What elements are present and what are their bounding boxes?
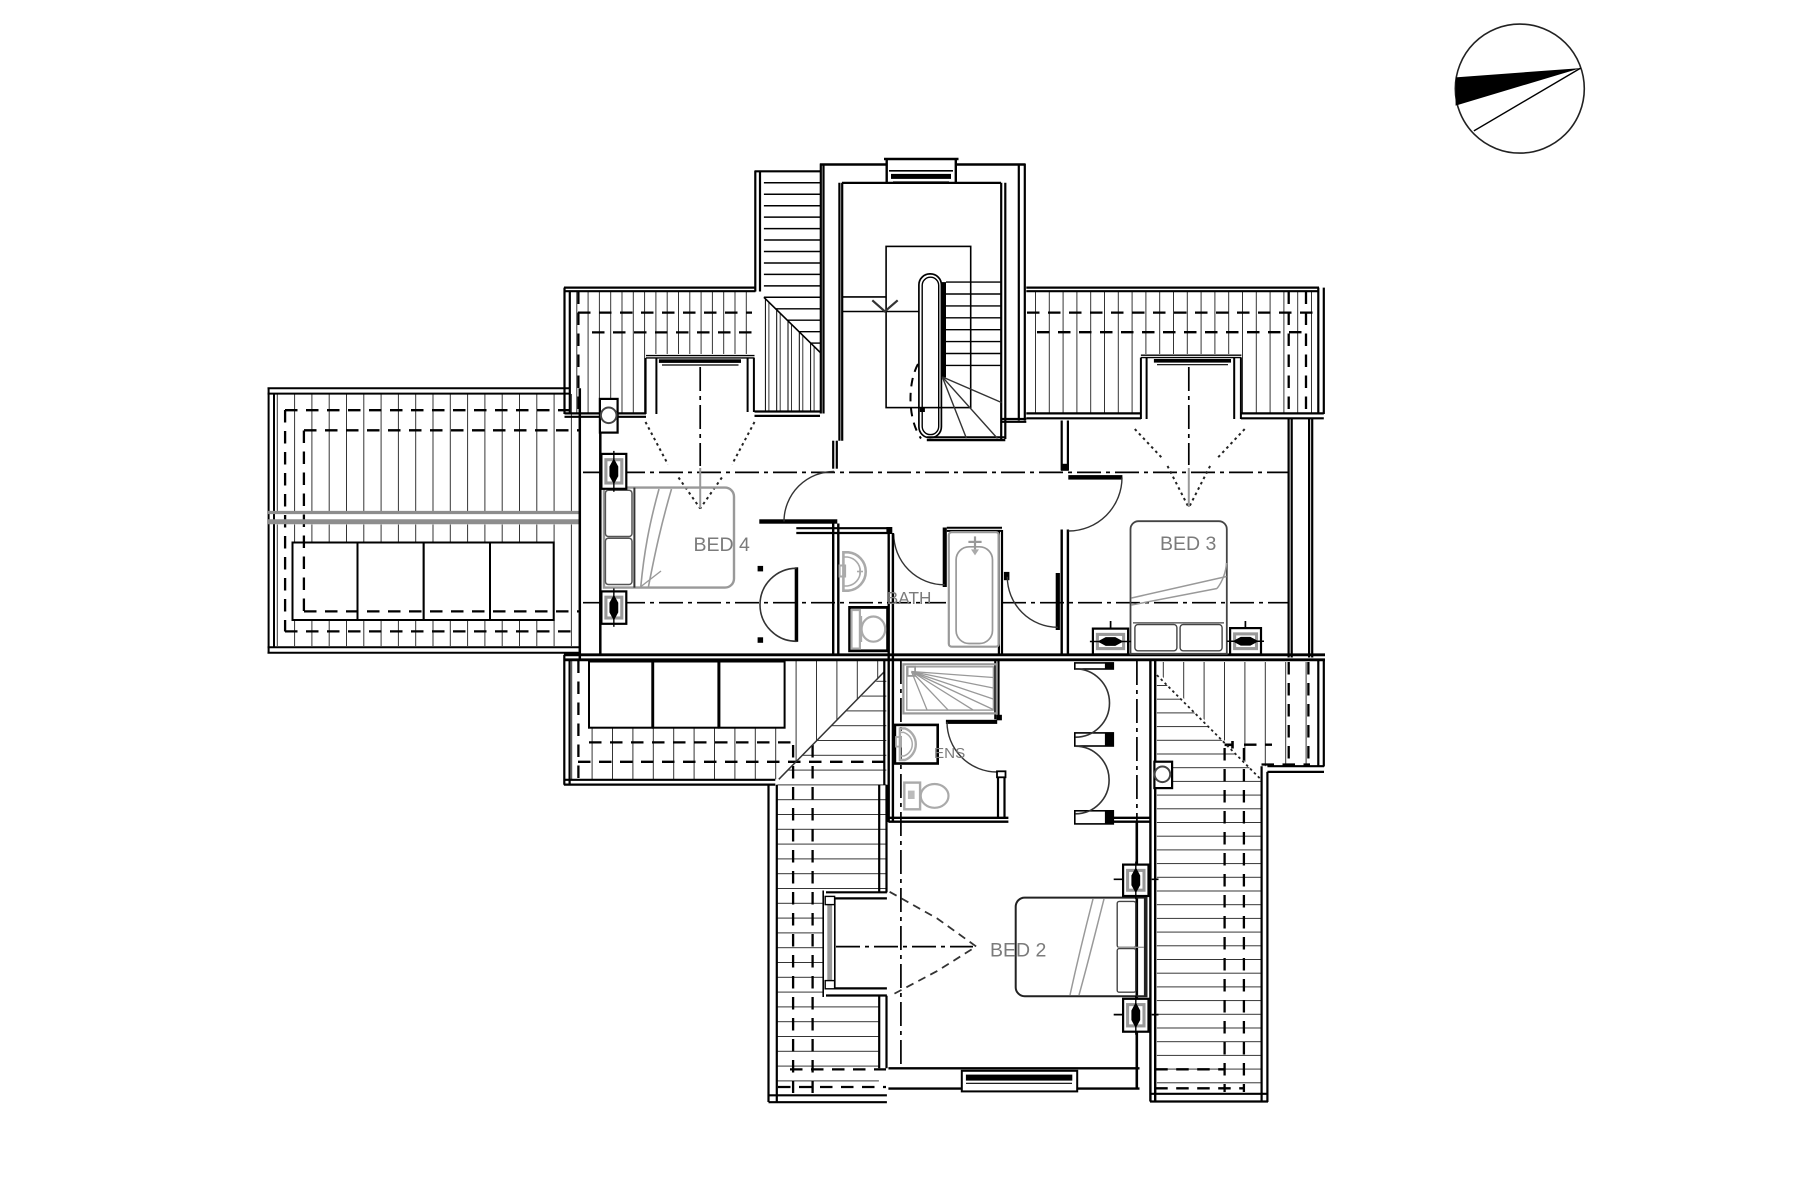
svg-text:BED 3: BED 3 — [1160, 533, 1216, 555]
svg-text:BED 4: BED 4 — [694, 534, 751, 556]
svg-text:BED 2: BED 2 — [990, 940, 1046, 962]
svg-text:BATH: BATH — [887, 588, 932, 608]
svg-text:ENS: ENS — [934, 745, 965, 762]
